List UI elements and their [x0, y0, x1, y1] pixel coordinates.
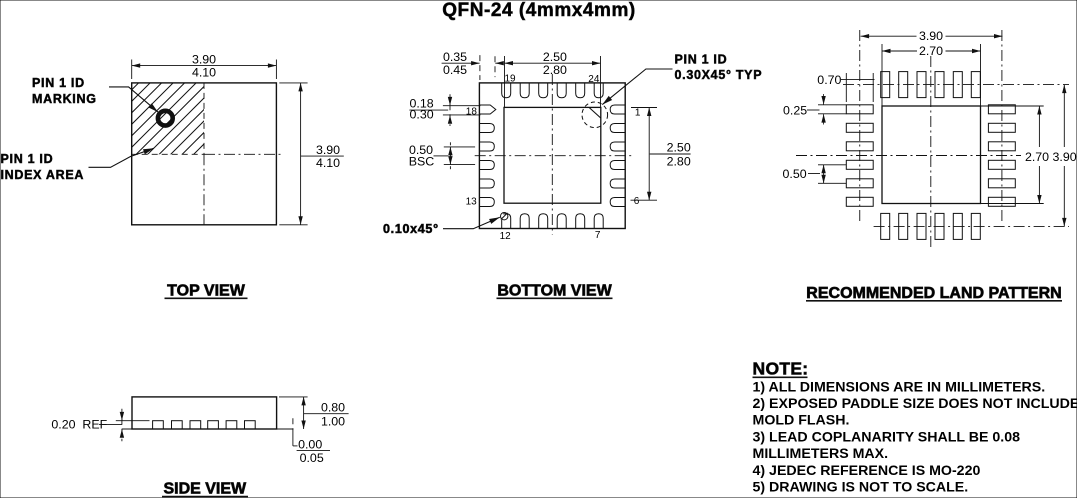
- svg-text:3.90: 3.90: [192, 52, 216, 66]
- svg-text:7: 7: [595, 230, 601, 241]
- svg-text:5) DRAWING IS NOT TO SCALE.: 5) DRAWING IS NOT TO SCALE.: [753, 480, 969, 496]
- svg-text:2.80: 2.80: [667, 155, 691, 169]
- svg-text:BOTTOM VIEW: BOTTOM VIEW: [497, 283, 612, 300]
- svg-text:1.00: 1.00: [321, 415, 345, 429]
- svg-text:2) EXPOSED PADDLE SIZE DOES NO: 2) EXPOSED PADDLE SIZE DOES NOT INCLUDE: [753, 396, 1077, 412]
- svg-text:INDEX AREA: INDEX AREA: [1, 168, 85, 182]
- svg-text:PIN 1 ID: PIN 1 ID: [675, 53, 728, 67]
- svg-text:24: 24: [588, 74, 600, 85]
- svg-text:0.30X45° TYP: 0.30X45° TYP: [675, 68, 763, 82]
- svg-text:2.70: 2.70: [1025, 150, 1049, 164]
- svg-text:1: 1: [635, 107, 641, 118]
- svg-text:12: 12: [500, 231, 512, 242]
- svg-text:19: 19: [505, 74, 517, 85]
- svg-text:0.45: 0.45: [443, 63, 467, 77]
- svg-text:4) JEDEC REFERENCE IS MO-220: 4) JEDEC REFERENCE IS MO-220: [753, 463, 981, 479]
- svg-text:MOLD FLASH.: MOLD FLASH.: [753, 413, 850, 429]
- svg-text:0.35: 0.35: [443, 50, 467, 64]
- svg-text:TOP VIEW: TOP VIEW: [167, 283, 246, 300]
- svg-text:0.80: 0.80: [321, 401, 345, 415]
- svg-text:3.90: 3.90: [919, 29, 943, 43]
- svg-text:RECOMMENDED LAND PATTERN: RECOMMENDED LAND PATTERN: [806, 285, 1061, 302]
- svg-text:1) ALL DIMENSIONS ARE IN MILLI: 1) ALL DIMENSIONS ARE IN MILLIMETERS.: [753, 379, 1046, 395]
- svg-text:0.70: 0.70: [817, 73, 841, 87]
- svg-text:4.10: 4.10: [192, 65, 216, 79]
- svg-text:18: 18: [466, 106, 478, 117]
- svg-text:0.25: 0.25: [783, 104, 807, 118]
- svg-text:SIDE VIEW: SIDE VIEW: [163, 481, 247, 498]
- svg-text:BSC: BSC: [409, 155, 435, 169]
- svg-text:2.50: 2.50: [543, 50, 567, 64]
- svg-text:PIN 1 ID: PIN 1 ID: [1, 152, 54, 166]
- svg-text:3) LEAD COPLANARITY SHALL BE 0: 3) LEAD COPLANARITY SHALL BE 0.08: [753, 429, 1021, 445]
- svg-text:0.05: 0.05: [300, 451, 324, 465]
- svg-text:0.50: 0.50: [783, 167, 807, 181]
- svg-text:13: 13: [466, 196, 478, 207]
- svg-text:3.90: 3.90: [1053, 150, 1077, 164]
- svg-text:MILLIMETERS MAX.: MILLIMETERS MAX.: [753, 446, 889, 462]
- svg-text:2.70: 2.70: [919, 44, 943, 58]
- svg-text:2.80: 2.80: [543, 63, 567, 77]
- svg-text:QFN-24 (4mmx4mm): QFN-24 (4mmx4mm): [442, 0, 636, 21]
- svg-text:3.90: 3.90: [316, 143, 340, 157]
- svg-text:0.10x45°: 0.10x45°: [383, 222, 439, 236]
- svg-text:PIN 1 ID: PIN 1 ID: [32, 76, 85, 90]
- svg-text:2.50: 2.50: [667, 141, 691, 155]
- svg-text:NOTE:: NOTE:: [753, 359, 809, 379]
- svg-text:0.00: 0.00: [298, 437, 322, 451]
- svg-text:6: 6: [634, 196, 640, 207]
- svg-text:MARKING: MARKING: [32, 92, 97, 106]
- svg-text:4.10: 4.10: [316, 156, 340, 170]
